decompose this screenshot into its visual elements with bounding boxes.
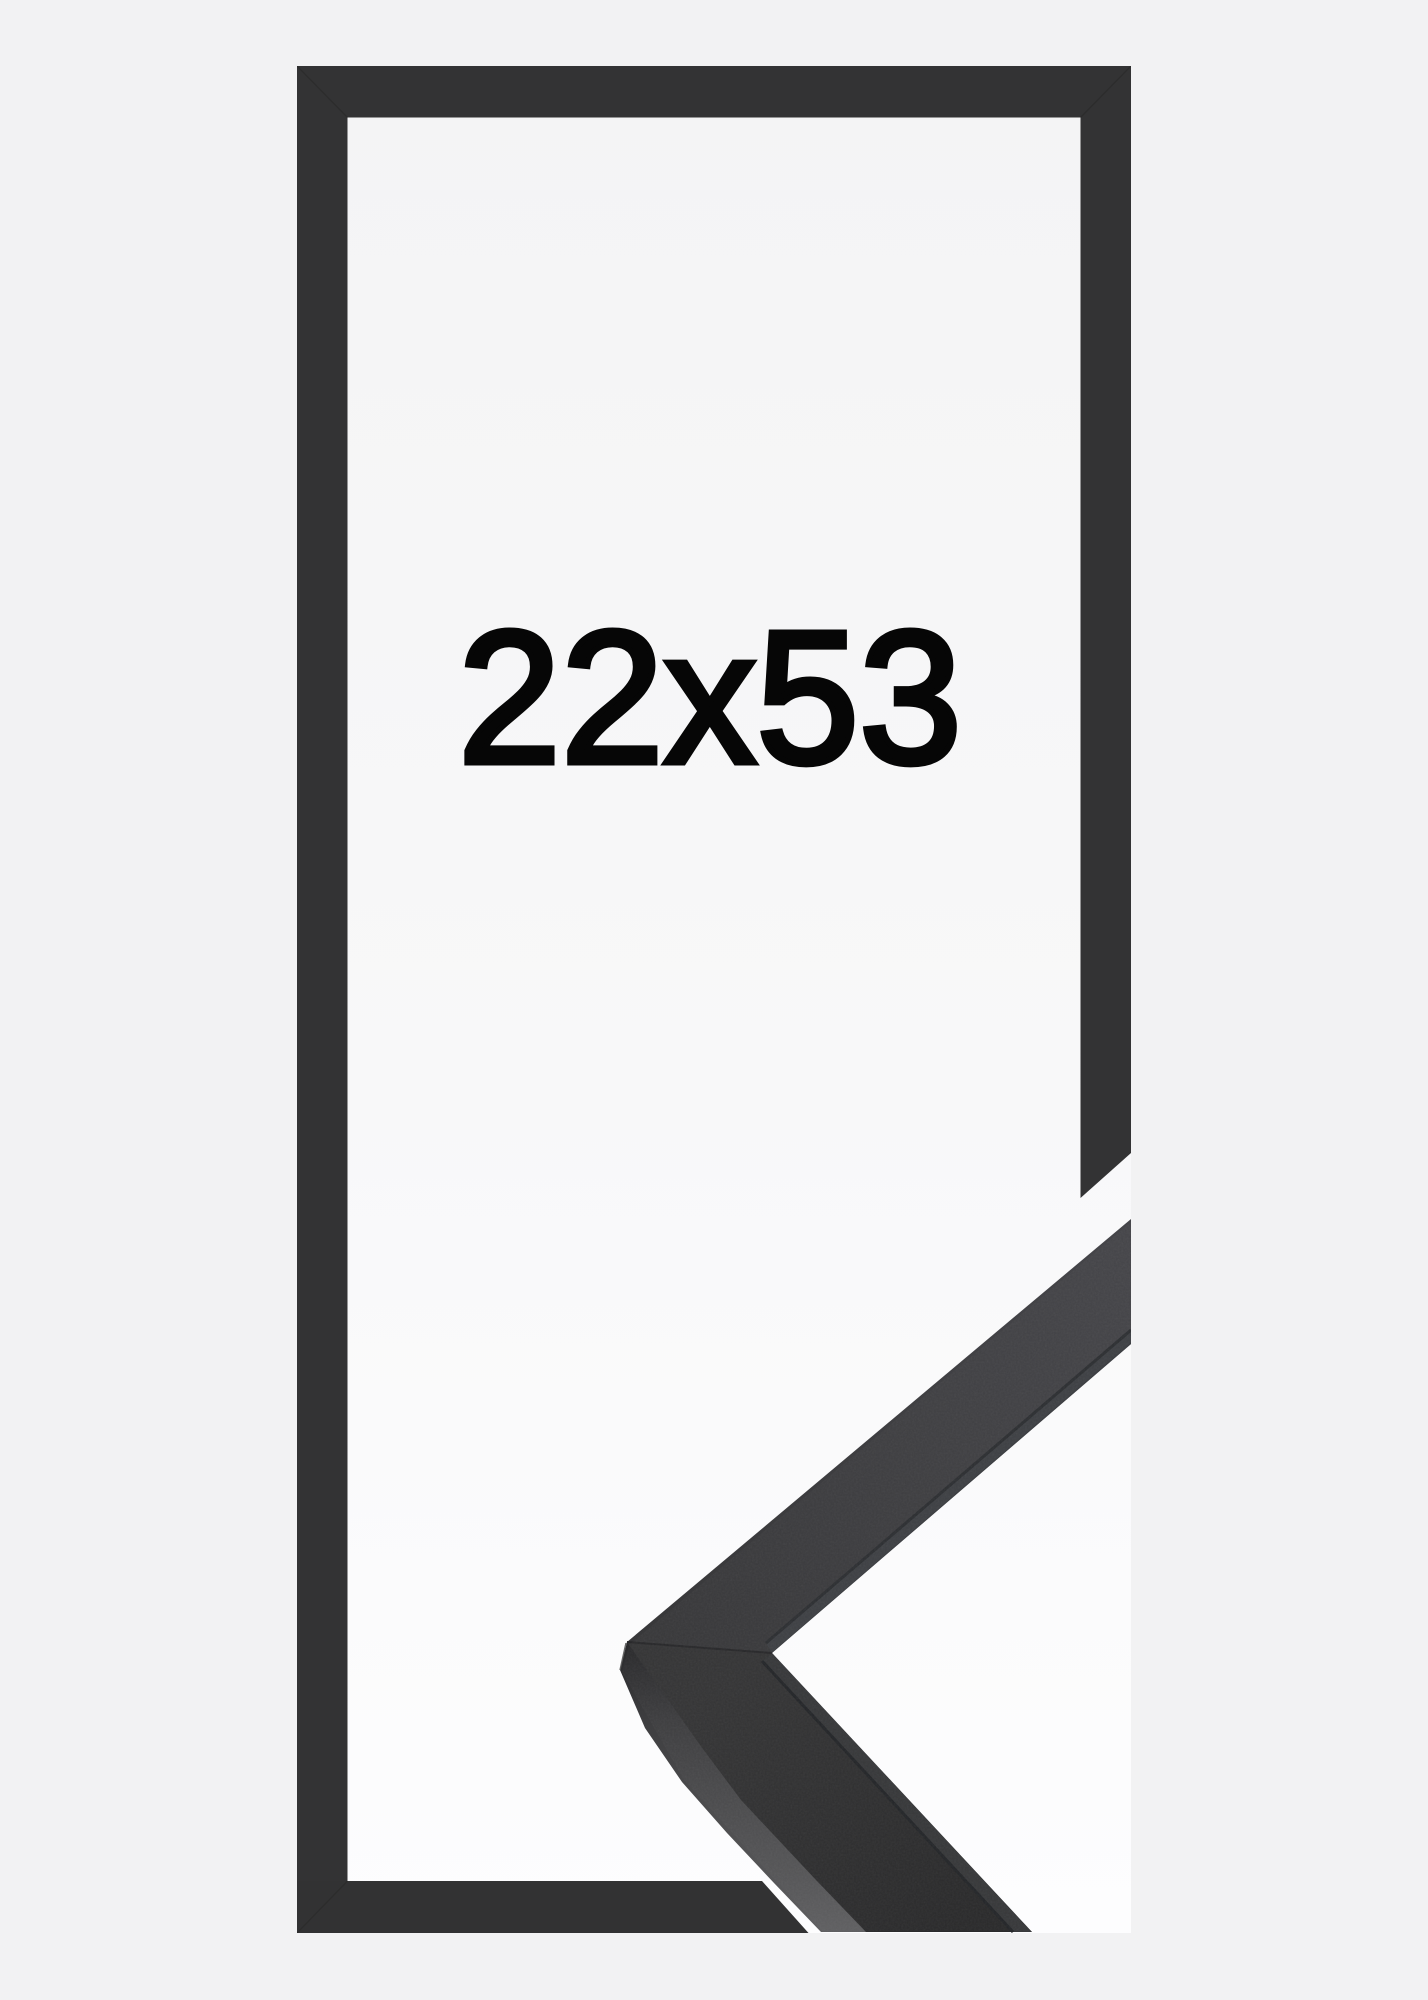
svg-text:22x53: 22x53 [458, 593, 962, 804]
